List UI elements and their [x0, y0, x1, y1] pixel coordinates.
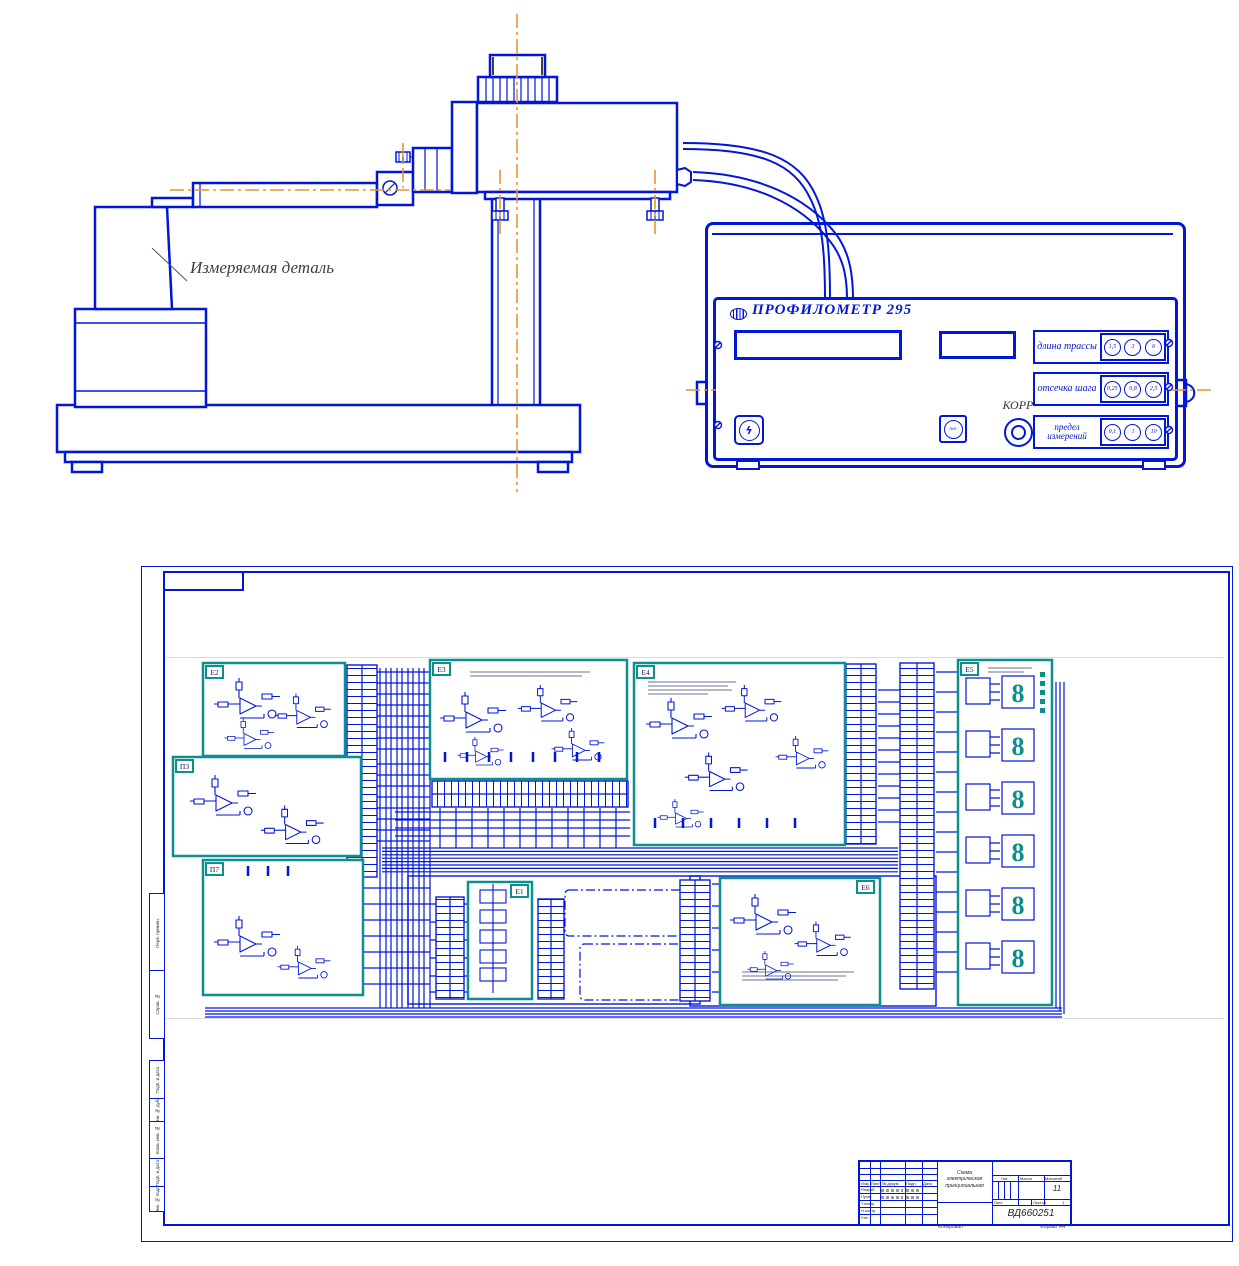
pickup-joint — [377, 172, 413, 205]
profilometer-front-panel: ПРОФИЛОМЕТР 295 длина трассы 1,5 3 6 отс… — [713, 297, 1178, 461]
knob-accent — [493, 57, 542, 75]
doc-number: ВД660251 — [992, 1208, 1070, 1219]
measured-part-label: Измеряемая деталь — [190, 258, 334, 278]
tb-scale-value: 11 — [1044, 1184, 1070, 1193]
base-foot — [538, 462, 568, 472]
margin-cell: Подп. и дата — [149, 1060, 165, 1100]
step-cutoff-button: 0,8 — [1124, 381, 1141, 398]
tb-header: № докум. — [882, 1181, 905, 1186]
lift-knob-ring — [478, 77, 557, 102]
measure-limit-group: пределизмерений 0,1 1 10 — [1033, 415, 1169, 449]
trace-length-button: 6 — [1145, 339, 1162, 356]
probe-clamp — [413, 148, 452, 192]
doc-title: Схема электрическая принципиальная — [938, 1170, 991, 1189]
manufacturer-logo-icon — [730, 308, 747, 320]
drive-unit-body — [477, 103, 677, 192]
measure-limit-button: 10 — [1145, 424, 1162, 441]
correction-knob — [1004, 418, 1033, 447]
joint-screw-icon — [383, 181, 397, 195]
margin-cell: Перв. примен. — [149, 893, 165, 972]
margin-cell: Инв. № дубл. — [149, 1098, 165, 1123]
mount-bolt-icon — [651, 198, 659, 211]
margin-cell: Подп. и дата — [149, 1158, 165, 1188]
measure-limit-button: 1 — [1124, 424, 1141, 441]
start-button: пск — [939, 415, 967, 443]
side-handle — [697, 382, 705, 404]
step-cutoff-button: 0,25 — [1104, 381, 1121, 398]
tb-header: Дата — [923, 1181, 937, 1186]
group-buttons: 0,1 1 10 — [1100, 418, 1166, 446]
signature-scribble — [881, 1196, 903, 1199]
stand-base — [57, 405, 580, 452]
tb-mass: Масса — [1020, 1176, 1043, 1181]
tb-header: Лист — [871, 1181, 880, 1186]
case-lid-line — [712, 233, 1173, 235]
signature-scribble — [881, 1189, 903, 1192]
drive-lip — [485, 192, 670, 199]
sheet-stamp-cell — [163, 571, 244, 591]
tb-row-label: Разраб. — [861, 1187, 875, 1192]
tb-row-label: Утв. — [861, 1215, 869, 1220]
tb-row-label: Т.контр. — [861, 1201, 876, 1206]
measuring-stand — [57, 55, 691, 472]
part-label-leader — [152, 248, 187, 281]
tb-sheets-value: 1 — [1062, 1200, 1064, 1205]
scan-edge-line — [166, 657, 1224, 658]
group-label: отсечка шага — [1035, 374, 1099, 404]
scan-edge-line — [166, 1018, 1224, 1019]
power-icon: ϟ — [739, 420, 760, 441]
base-foot — [72, 462, 102, 472]
cable-plug-icon — [677, 168, 691, 186]
recorder-window — [734, 330, 902, 360]
margin-cell: Инв. № подл. — [149, 1186, 165, 1212]
tb-sheet: Лист — [994, 1200, 1003, 1205]
group-buttons: 1,5 3 6 — [1100, 333, 1166, 361]
step-cutoff-group: отсечка шага 0,25 0,8 2,5 — [1033, 372, 1169, 406]
tb-lit: Лит. — [1001, 1176, 1017, 1181]
mount-bolt-icon — [496, 198, 504, 211]
margin-cell: Взам. инв. № — [149, 1121, 165, 1160]
measured-part — [95, 207, 172, 309]
clamp-bolt-icon — [396, 152, 410, 162]
indicator-window — [939, 331, 1016, 359]
tb-row-label: Пров. — [861, 1194, 872, 1199]
pickup-shoe — [152, 198, 193, 207]
work-table — [75, 309, 206, 407]
knob-center — [1011, 425, 1026, 440]
sheet-frame — [163, 571, 1230, 1226]
tb-header: Подп. — [906, 1181, 922, 1186]
trace-length-group: длина трассы 1,5 3 6 — [1033, 330, 1169, 364]
tb-sheets: Листов — [1033, 1200, 1046, 1205]
start-button-ring: пск — [944, 420, 963, 439]
tb-scale: Масштаб — [1045, 1176, 1070, 1181]
trace-length-button: 1,5 — [1104, 339, 1121, 356]
title-block: Изм. Лист № докум. Подп. Дата Разраб. Пр… — [858, 1160, 1072, 1226]
base-plate — [65, 452, 572, 462]
tb-header: Изм. — [861, 1181, 870, 1186]
margin-cell: Справ. № — [149, 970, 165, 1039]
column — [492, 198, 540, 405]
engineering-drawing-page: ПРОФИЛОМЕТР 295 длина трассы 1,5 3 6 отс… — [0, 0, 1239, 1266]
trace-length-button: 3 — [1124, 339, 1141, 356]
group-buttons: 0,25 0,8 2,5 — [1100, 375, 1166, 403]
correction-label: КОРР — [996, 398, 1040, 413]
signature-scribble — [906, 1189, 920, 1192]
measure-limit-button: 0,1 — [1104, 424, 1121, 441]
lift-knob-cap — [490, 55, 545, 77]
copied-label: Копировал — [938, 1224, 963, 1230]
drive-neck — [452, 102, 477, 193]
group-label: пределизмерений — [1035, 417, 1099, 447]
device-title: ПРОФИЛОМЕТР 295 — [752, 302, 912, 319]
step-cutoff-button: 2,5 — [1145, 381, 1162, 398]
power-button: ϟ — [734, 415, 764, 445]
format-label: Формат А4 — [1040, 1224, 1065, 1230]
tb-row-label: Н.контр. — [861, 1208, 876, 1213]
pickup-probe — [193, 183, 377, 207]
group-label: длина трассы — [1035, 332, 1099, 362]
signature-scribble — [906, 1196, 920, 1199]
